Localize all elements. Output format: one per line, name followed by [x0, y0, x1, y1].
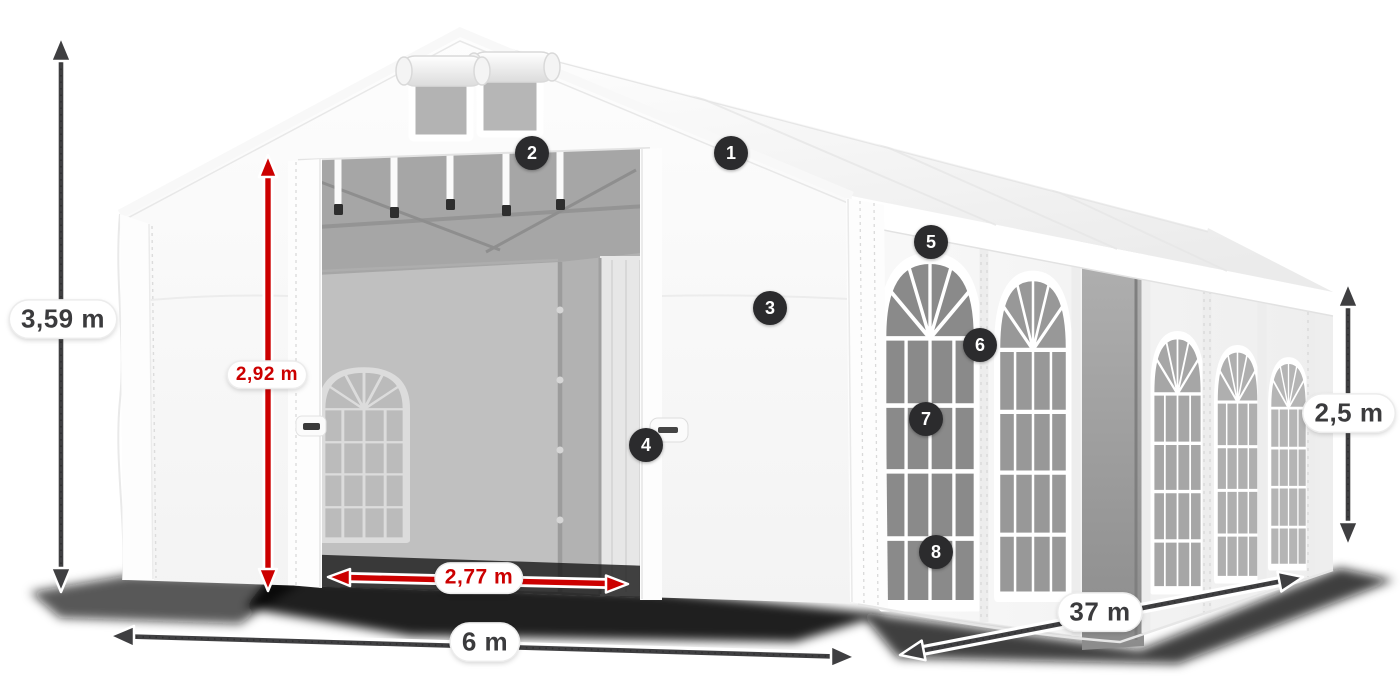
- door-handle-right: [658, 427, 678, 433]
- door-handle-left: [303, 423, 320, 430]
- callout-badge-3[interactable]: 3: [753, 291, 787, 325]
- entrance-interior: [298, 148, 650, 598]
- front-width-label: 6 m: [451, 624, 519, 661]
- entrance-height-label: 2,92 m: [228, 362, 306, 388]
- total-height-label: 3,59 m: [10, 301, 116, 338]
- callout-badge-5[interactable]: 5: [914, 225, 948, 259]
- side-length-label: 37 m: [1058, 594, 1141, 631]
- entrance-width-label: 2,77 m: [436, 564, 522, 593]
- callout-badge-1[interactable]: 1: [714, 136, 748, 170]
- side-wall-height-label: 2,5 m: [1304, 395, 1395, 432]
- callout-badge-4[interactable]: 4: [629, 428, 663, 462]
- side-door-opening: [1074, 221, 1150, 650]
- gable-vents: [396, 52, 560, 138]
- tent-illustration: [0, 0, 1400, 700]
- callout-badge-8[interactable]: 8: [919, 535, 953, 569]
- callout-badge-6[interactable]: 6: [963, 328, 997, 362]
- callout-badge-7[interactable]: 7: [909, 402, 943, 436]
- callout-badge-2[interactable]: 2: [515, 136, 549, 170]
- tent-dimensions-diagram: 3,59 m 2,92 m 2,77 m 6 m 37 m 2,5 m 1 2 …: [0, 0, 1400, 700]
